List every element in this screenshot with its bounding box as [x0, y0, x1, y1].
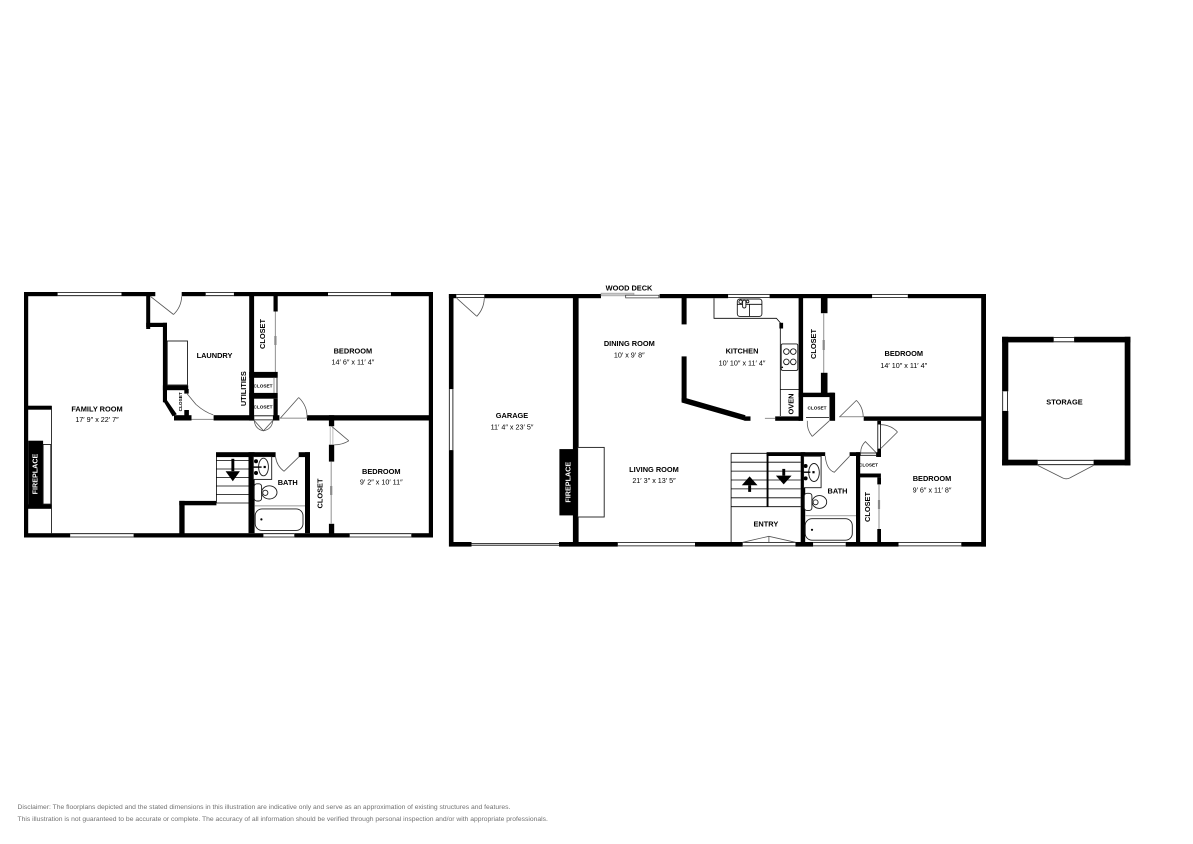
svg-text:CLOSET: CLOSET [807, 405, 826, 410]
svg-text:CLOSET: CLOSET [258, 319, 267, 349]
svg-text:9′ 6″ x 11′ 8″: 9′ 6″ x 11′ 8″ [913, 485, 952, 494]
svg-text:BEDROOM: BEDROOM [362, 467, 401, 476]
svg-text:21′ 3″ x 13′ 5″: 21′ 3″ x 13′ 5″ [632, 476, 676, 485]
svg-text:LIVING ROOM: LIVING ROOM [629, 465, 679, 474]
svg-text:OVEN: OVEN [786, 394, 795, 415]
svg-text:14′ 6″ x 11′ 4″: 14′ 6″ x 11′ 4″ [331, 357, 374, 366]
svg-text:10′ 10″ x 11′ 4″: 10′ 10″ x 11′ 4″ [719, 359, 766, 368]
svg-text:CLOSET: CLOSET [253, 383, 272, 388]
svg-text:UTILITIES: UTILITIES [239, 371, 248, 406]
svg-text:CLOSET: CLOSET [178, 392, 183, 411]
svg-text:DINING ROOM: DINING ROOM [604, 339, 655, 348]
svg-text:This illustration is not guara: This illustration is not guaranteed to b… [18, 816, 549, 823]
svg-text:14′ 10″ x 11′ 4″: 14′ 10″ x 11′ 4″ [880, 361, 927, 370]
svg-text:WOOD DECK: WOOD DECK [606, 284, 653, 293]
svg-text:FIREPLACE: FIREPLACE [564, 462, 573, 503]
svg-text:Disclaimer: The floorplans dep: Disclaimer: The floorplans depicted and … [18, 804, 511, 811]
svg-text:KITCHEN: KITCHEN [726, 347, 759, 356]
svg-text:CLOSET: CLOSET [809, 329, 818, 359]
svg-text:BATH: BATH [828, 487, 848, 496]
svg-text:CLOSET: CLOSET [253, 404, 272, 409]
svg-text:10′ x 9′ 8″: 10′ x 9′ 8″ [614, 350, 645, 359]
svg-text:9′ 2″ x 10′ 11″: 9′ 2″ x 10′ 11″ [360, 478, 403, 487]
svg-text:BEDROOM: BEDROOM [884, 349, 923, 358]
svg-text:17′ 9″ x 22′ 7″: 17′ 9″ x 22′ 7″ [75, 415, 119, 424]
svg-text:CLOSET: CLOSET [859, 463, 878, 468]
svg-text:CLOSET: CLOSET [315, 478, 324, 508]
svg-text:BATH: BATH [278, 478, 298, 487]
svg-text:BEDROOM: BEDROOM [334, 347, 373, 356]
svg-text:LAUNDRY: LAUNDRY [197, 351, 233, 360]
svg-text:BEDROOM: BEDROOM [913, 474, 952, 483]
svg-text:11′ 4″ x 23′ 5″: 11′ 4″ x 23′ 5″ [491, 423, 534, 432]
svg-text:FAMILY ROOM: FAMILY ROOM [71, 405, 122, 414]
svg-text:FIREPLACE: FIREPLACE [31, 453, 40, 494]
svg-text:GARAGE: GARAGE [496, 411, 529, 420]
svg-text:CLOSET: CLOSET [863, 492, 872, 522]
svg-text:ENTRY: ENTRY [754, 519, 779, 528]
svg-text:STORAGE: STORAGE [1046, 398, 1082, 407]
